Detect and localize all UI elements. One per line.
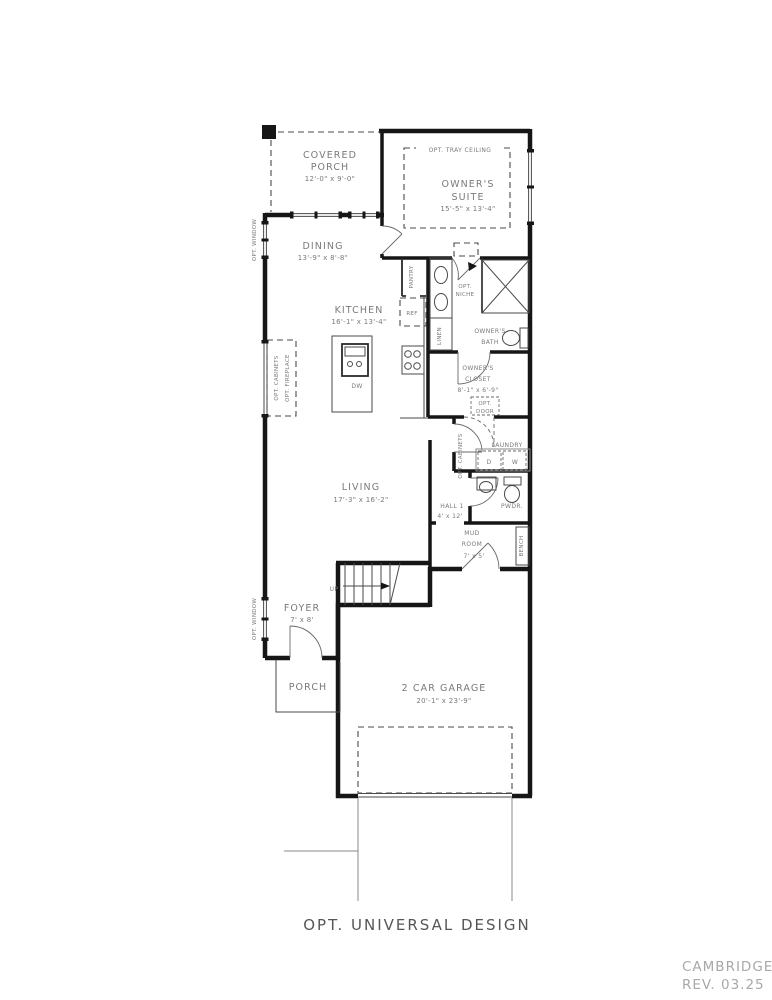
label-tray-ceiling: OPT. TRAY CEILING	[429, 147, 492, 154]
svg-text:12'-0" x 9'-0": 12'-0" x 9'-0"	[305, 175, 355, 183]
doors	[290, 226, 499, 658]
svg-text:16'-1" x 13'-4": 16'-1" x 13'-4"	[331, 318, 386, 326]
label-dw: DW	[351, 383, 362, 390]
svg-text:8'-1" x 6'-9": 8'-1" x 6'-9"	[458, 387, 499, 394]
svg-text:4' x 12': 4' x 12'	[437, 513, 462, 520]
label-opt-door: OPT.	[478, 401, 491, 407]
label-dining: DINING	[302, 241, 343, 252]
label-washer: W	[512, 459, 518, 466]
svg-text:ROOM: ROOM	[462, 541, 482, 548]
svg-text:CLOSET: CLOSET	[465, 376, 491, 383]
foyer-window	[262, 597, 269, 641]
label-opt-window-foyer: OPT. WINDOW	[252, 598, 258, 641]
svg-text:7' x 5': 7' x 5'	[463, 553, 484, 560]
svg-text:PORCH: PORCH	[311, 162, 350, 173]
label-owners-bath: OWNER'S	[474, 328, 505, 335]
label-ref: REF	[406, 311, 417, 317]
label-linen: LINEN	[437, 327, 443, 345]
label-up: UP	[330, 586, 339, 593]
suite-window	[527, 149, 534, 225]
label-mud-room: MUD	[464, 530, 479, 537]
niche-box	[454, 243, 478, 256]
svg-text:7' x 8': 7' x 8'	[290, 616, 313, 624]
suite-entry-door	[382, 226, 402, 254]
optional-door-swing	[464, 417, 494, 447]
label-dryer: D	[486, 459, 491, 466]
svg-text:17'-3" x 16'-2": 17'-3" x 16'-2"	[333, 496, 388, 504]
label-hall: HALL 1	[440, 503, 463, 510]
powder-fixtures	[477, 477, 521, 503]
drawing-title: OPT. UNIVERSAL DESIGN	[303, 916, 531, 934]
garage-door	[358, 727, 512, 797]
label-covered-porch: COVERED	[303, 150, 357, 161]
sink-icon	[435, 267, 448, 284]
sink-icon	[435, 294, 448, 311]
label-garage: 2 CAR GARAGE	[402, 683, 487, 694]
windows	[262, 149, 535, 641]
room-labels: COVERED PORCH 12'-0" x 9'-0" OWNER'S SUI…	[284, 150, 523, 705]
label-opt-niche: OPT.	[458, 284, 471, 290]
sink-icon	[480, 482, 493, 493]
label-opt-cabinets: OPT. CABINETS	[274, 355, 280, 400]
front-door	[290, 626, 322, 658]
label-foyer: FOYER	[284, 603, 320, 614]
label-living: LIVING	[342, 482, 380, 493]
label-owners-suite: OWNER'S	[442, 179, 495, 190]
toilet-icon	[505, 486, 520, 503]
laundry-fixtures	[476, 449, 530, 471]
shower	[482, 258, 529, 313]
svg-text:SUITE: SUITE	[451, 192, 484, 203]
svg-text:20'-1" x 23'-9": 20'-1" x 23'-9"	[416, 697, 471, 705]
label-opt-window-dining: OPT. WINDOW	[252, 219, 258, 262]
plan-name: CAMBRIDGE	[682, 959, 772, 975]
floor-plan-drawing: COVERED PORCH 12'-0" x 9'-0" OWNER'S SUI…	[0, 0, 772, 1000]
toilet-tank	[504, 477, 521, 485]
label-porch: PORCH	[289, 682, 328, 693]
label-laundry-cabinets: OPT. CABINETS	[458, 433, 464, 478]
svg-text:NICHE: NICHE	[456, 292, 475, 298]
revision-label: REV. 03.25	[682, 977, 765, 993]
svg-text:BATH: BATH	[481, 339, 499, 346]
stair-arrow-icon	[381, 583, 390, 590]
dining-window	[262, 221, 269, 259]
svg-text:13'-9" x 8'-8": 13'-9" x 8'-8"	[298, 254, 348, 262]
label-kitchen: KITCHEN	[335, 305, 384, 316]
label-bench: BENCH	[519, 536, 525, 557]
label-owners-closet: OWNER'S	[462, 365, 493, 372]
porch-wall-windows	[290, 212, 380, 219]
label-opt-fireplace: OPT. FIREPLACE	[285, 354, 291, 402]
stairs	[343, 563, 400, 605]
porch-post	[262, 125, 276, 139]
toilet-tank	[520, 328, 528, 348]
svg-text:15'-5" x 13'-4": 15'-5" x 13'-4"	[440, 205, 495, 213]
bath-entry-door	[452, 258, 480, 280]
driveway-lines	[284, 798, 512, 901]
floor-plan-canvas: COVERED PORCH 12'-0" x 9'-0" OWNER'S SUI…	[0, 0, 772, 1000]
svg-text:DOOR: DOOR	[476, 409, 494, 415]
label-pantry: PANTRY	[409, 265, 415, 288]
label-laundry: LAUNDRY	[491, 442, 522, 449]
label-powder: PWDR.	[501, 503, 523, 510]
range	[342, 344, 368, 376]
cooktop	[402, 346, 424, 374]
